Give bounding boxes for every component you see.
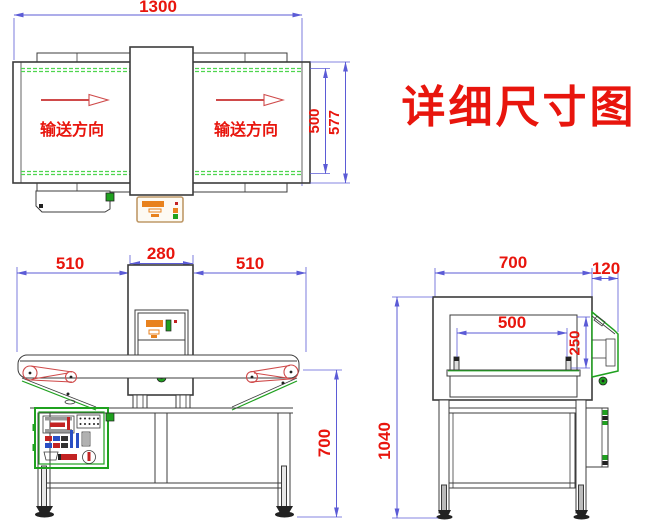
foot-icon xyxy=(574,510,590,520)
dim-label-577-top: 577 xyxy=(326,110,343,135)
dim-label-1300: 1300 xyxy=(139,0,177,16)
dimension-280: 280 xyxy=(130,244,193,266)
dimension-510-left: 510 xyxy=(17,254,129,352)
detector-head-front xyxy=(128,265,193,408)
motor-box-top-view xyxy=(36,191,114,212)
switch-icon xyxy=(88,452,91,461)
indicator-icon xyxy=(166,320,171,331)
top-view: 1300 输送方向 xyxy=(13,0,350,222)
side-view: 700 120 500 250 xyxy=(375,253,620,520)
detector-head-top xyxy=(130,47,193,195)
direction-label-left: 输送方向 xyxy=(40,120,104,139)
base-legs-side xyxy=(437,400,609,520)
motor-box-side xyxy=(584,408,608,467)
connector-icon xyxy=(106,193,114,201)
dimension-700-front: 700 xyxy=(297,370,342,517)
dim-label-700-front: 700 xyxy=(315,429,334,457)
control-panel-side xyxy=(592,312,618,385)
direction-label-right: 输送方向 xyxy=(214,120,278,139)
dim-label-500-side: 500 xyxy=(498,313,526,332)
dimension-drawing-page: 1300 输送方向 xyxy=(0,0,650,530)
foot-icon xyxy=(35,506,54,518)
dimension-1040: 1040 xyxy=(375,297,438,518)
front-view: 510 280 510 xyxy=(17,244,342,518)
dim-label-700-side: 700 xyxy=(499,253,527,272)
button-icon xyxy=(173,208,178,213)
dimension-510-right: 510 xyxy=(194,254,306,352)
dim-label-250: 250 xyxy=(567,330,584,355)
dim-label-120: 120 xyxy=(592,259,620,278)
page-title: 详细尺寸图 xyxy=(402,83,637,132)
dim-label-510-right: 510 xyxy=(236,254,264,273)
display-icon xyxy=(142,201,164,207)
control-panel-top-view xyxy=(137,197,183,222)
dim-label-280: 280 xyxy=(147,244,175,263)
cad-drawing: 1300 输送方向 xyxy=(0,0,650,530)
dim-label-510-left: 510 xyxy=(56,254,84,273)
foot-icon xyxy=(437,510,453,520)
connector-icon xyxy=(106,413,114,421)
terminal-block xyxy=(77,415,100,428)
foot-icon xyxy=(275,506,294,518)
box-bottom-row xyxy=(44,451,96,464)
dim-label-1040: 1040 xyxy=(375,422,394,460)
button-icon xyxy=(173,214,178,219)
dim-label-500-top: 500 xyxy=(306,108,323,133)
display-icon xyxy=(146,320,163,327)
